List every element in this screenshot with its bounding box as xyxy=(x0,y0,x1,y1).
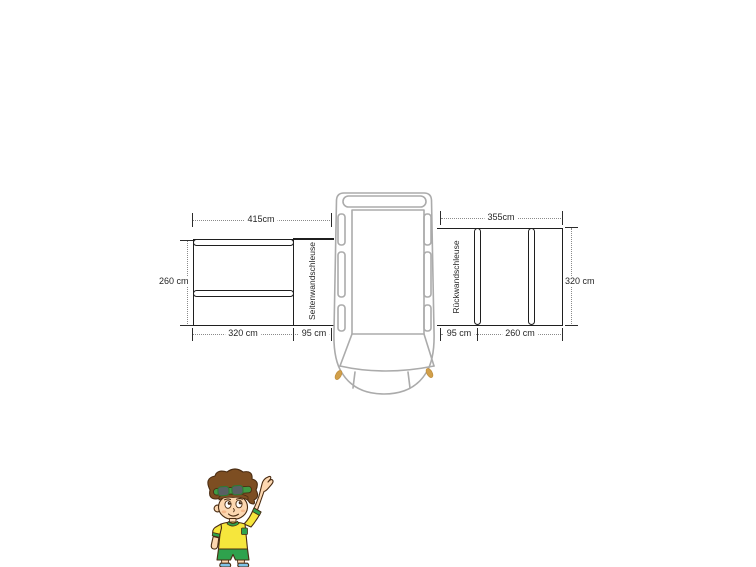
right-annex-bottom-line xyxy=(437,325,563,327)
dimension-tick xyxy=(192,328,193,341)
van-headlight xyxy=(425,367,435,378)
boy-shorts xyxy=(217,549,249,560)
dimension-tick xyxy=(565,325,578,326)
dimension-tick xyxy=(192,213,193,227)
left-top-dimension-label: 415cm xyxy=(244,214,277,225)
right-top-dimension-label: 355cm xyxy=(484,212,517,223)
dimension-tick xyxy=(562,211,563,225)
van-hood-crease xyxy=(408,372,410,388)
right-bottom-main-label: 260 cm xyxy=(502,328,538,339)
van-rear-window xyxy=(343,196,426,207)
van-right-window xyxy=(424,214,431,245)
boy-lowered-arm xyxy=(211,537,219,550)
dimension-tick xyxy=(440,211,441,225)
boy-shoe xyxy=(238,563,249,567)
van-right-window xyxy=(424,252,431,297)
dimension-tick xyxy=(180,325,194,326)
left-annex-outline xyxy=(193,239,294,326)
right-annex-name: Rückwandschleuse xyxy=(451,232,461,322)
dimension-tick xyxy=(477,328,478,341)
van-windshield-edge xyxy=(340,334,352,366)
dimension-tick xyxy=(440,328,441,341)
van-body-outline xyxy=(334,193,434,394)
right-annex-top-line xyxy=(437,228,563,230)
van-left-window xyxy=(338,252,345,297)
right-annex-pole-1 xyxy=(474,228,481,325)
van-left-window xyxy=(338,214,345,245)
van-top-view-illustration xyxy=(331,189,438,401)
left-annex-middle-pole xyxy=(193,290,294,297)
right-annex-pole-2 xyxy=(528,228,535,325)
left-side-dimension-label: 260 cm xyxy=(158,276,190,287)
left-bottom-tunnel-label: 95 cm xyxy=(299,328,330,339)
boy-pocket xyxy=(242,528,248,535)
right-annex-end-wall xyxy=(562,228,564,326)
right-side-dimension-label: 320 cm xyxy=(564,276,596,287)
boy-shoe xyxy=(220,563,231,567)
van-right-window xyxy=(424,305,431,331)
van-left-window xyxy=(338,305,345,331)
dimension-tick xyxy=(562,328,563,341)
mascot-boy-illustration xyxy=(199,466,279,567)
dimension-tick xyxy=(565,227,578,228)
dimension-tick xyxy=(180,240,194,241)
van-headlight xyxy=(334,369,344,380)
boy-blush xyxy=(241,510,245,513)
dimension-tick xyxy=(293,328,294,341)
van-roof xyxy=(352,210,424,334)
left-annex-name: Seitenwandschleuse xyxy=(307,236,317,326)
van-windshield-edge xyxy=(424,334,434,366)
left-bottom-main-label: 320 cm xyxy=(225,328,261,339)
left-annex-top-pole xyxy=(193,239,294,246)
right-bottom-tunnel-label: 95 cm xyxy=(444,328,475,339)
diagram-canvas: 415cm 260 cm Seitenwandschleuse 320 cm 9… xyxy=(0,0,756,567)
boy-blush xyxy=(222,510,227,513)
van-windshield-bottom xyxy=(340,366,434,371)
